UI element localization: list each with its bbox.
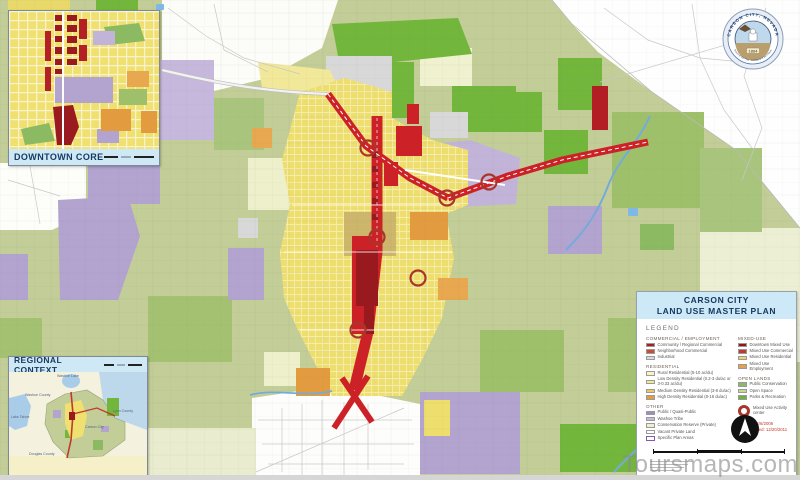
legend-swatch xyxy=(646,356,655,361)
legend-item-label: Rural Residential (5-10 ac/du) xyxy=(658,371,714,376)
legend-item-label: Community / Regional Commercial xyxy=(658,343,723,348)
legend-item: Downtown Mixed Use xyxy=(738,343,793,348)
legend-swatch xyxy=(646,395,655,400)
legend-section-title: OTHER xyxy=(646,404,734,409)
legend-swatch xyxy=(738,349,747,354)
legend-swatch xyxy=(646,343,655,348)
legend-item: Public Conservation xyxy=(738,382,793,387)
legend-item-label: Mixed Use Employment xyxy=(750,362,794,372)
label-washoe-county: Washoe County xyxy=(25,393,50,397)
legend-item-label: Mixed Use Residential xyxy=(750,355,792,360)
north-arrow-icon xyxy=(730,414,760,444)
legend-item: Neighborhood Commercial xyxy=(646,349,734,354)
legend-swatch xyxy=(646,371,655,376)
carson-city-seal: 1864 CARSON CITY, NEVADA Proud of the Pa… xyxy=(722,8,784,70)
legend-swatch xyxy=(738,364,747,369)
label-lyon-county: Lyon County xyxy=(113,409,133,413)
legend-item: Open Space xyxy=(738,389,793,394)
legend-item-label: Downtown Mixed Use xyxy=(750,343,791,348)
legend-item: Conservation Reserve (Private) xyxy=(646,423,734,428)
legend-swatch xyxy=(738,395,747,400)
label-douglas-county: Douglas County xyxy=(29,452,55,456)
legend-item: Mixed Use Employment xyxy=(738,362,793,372)
legend-item-label: Conservation Reserve (Private) xyxy=(658,423,716,428)
legend-item-label: Specific Plan Areas xyxy=(658,436,694,441)
legend-swatch xyxy=(646,417,655,422)
legend-swatch xyxy=(646,423,655,428)
legend-swatch xyxy=(738,356,747,361)
legend-item-label: Neighborhood Commercial xyxy=(658,349,708,354)
regional-context-inset: REGIONAL CONTEXT Washoe Lake Washoe Coun… xyxy=(8,356,148,477)
legend-panel: CARSON CITY LAND USE MASTER PLAN LEGEND … xyxy=(636,291,797,477)
legend-swatch xyxy=(646,389,655,394)
legend-item: Vacant Private Land xyxy=(646,430,734,435)
downtown-core-title: DOWNTOWN CORE xyxy=(14,152,104,162)
label-washoe-lake: Washoe Lake xyxy=(57,374,79,378)
map-sheet: DOWNTOWN CORE REGIONAL CONTEXT xyxy=(0,0,800,480)
legend-item: Community / Regional Commercial xyxy=(646,343,734,348)
legend-title-line1: CARSON CITY xyxy=(684,295,749,305)
legend-section-title: RESIDENTIAL xyxy=(646,364,734,369)
legend-swatch xyxy=(646,436,655,441)
legend-item: Mixed Use Residential xyxy=(738,355,793,360)
legend-item: Rural Residential (5-10 ac/du) xyxy=(646,371,734,376)
legend-section-title: MIXED-USE xyxy=(738,336,793,341)
legend-item-label: Vacant Private Land xyxy=(658,430,695,435)
legend-item: Mixed Use Commercial xyxy=(738,349,793,354)
legend-section-title: OPEN LANDS xyxy=(738,376,793,381)
regional-context-map xyxy=(9,372,147,476)
legend-item: Industrial xyxy=(646,355,734,360)
legend-swatch xyxy=(738,389,747,394)
legend-item-label: Medium Density Residential (3-8 du/ac) xyxy=(658,389,731,394)
legend-column-left: COMMERCIAL / EMPLOYMENTCommunity / Regio… xyxy=(646,336,734,445)
legend-swatch xyxy=(646,430,655,435)
legend-item-label: Industrial xyxy=(658,355,675,360)
legend-item-label: Washoe Tribe xyxy=(658,417,684,422)
legend-item: High Density Residential (8-16 du/ac) xyxy=(646,395,734,400)
legend-item-label: Low Density Residential (0.2-3 du/ac or … xyxy=(658,377,735,387)
legend-item-label: Public / Quasi-Public xyxy=(658,410,697,415)
regional-scale-bar xyxy=(104,364,142,366)
legend-title-line2: LAND USE MASTER PLAN xyxy=(657,306,776,316)
downtown-core-inset: DOWNTOWN CORE xyxy=(8,10,160,166)
legend-section-title: COMMERCIAL / EMPLOYMENT xyxy=(646,336,734,341)
watermark: Toursmaps.com xyxy=(622,451,798,479)
legend-item: Medium Density Residential (3-8 du/ac) xyxy=(646,389,734,394)
legend-item: Parks & Recreation xyxy=(738,395,793,400)
legend-item: Public / Quasi-Public xyxy=(646,410,734,415)
label-lake-tahoe: Lake Tahoe xyxy=(11,415,30,419)
legend-item-label: Parks & Recreation xyxy=(750,395,786,400)
seal-year: 1864 xyxy=(749,48,759,53)
legend-item: Washoe Tribe xyxy=(646,417,734,422)
legend-title: CARSON CITY LAND USE MASTER PLAN xyxy=(637,292,796,319)
legend-heading: LEGEND xyxy=(646,325,680,332)
legend-item-label: Public Conservation xyxy=(750,382,787,387)
downtown-scale-bar xyxy=(104,156,154,158)
downtown-core-map xyxy=(9,11,159,150)
legend-item: Specific Plan Areas xyxy=(646,436,734,441)
legend-item-label: High Density Residential (8-16 du/ac) xyxy=(658,395,727,400)
legend-item-label: Open Space xyxy=(750,389,773,394)
legend-swatch xyxy=(738,382,747,387)
legend-item: Low Density Residential (0.2-3 du/ac or … xyxy=(646,377,734,387)
legend-swatch xyxy=(646,411,655,416)
label-carson-city: Carson City xyxy=(85,425,104,429)
legend-swatch xyxy=(646,349,655,354)
legend-item-label: Mixed Use Commercial xyxy=(750,349,793,354)
legend-swatch xyxy=(646,380,655,385)
legend-swatch xyxy=(738,343,747,348)
